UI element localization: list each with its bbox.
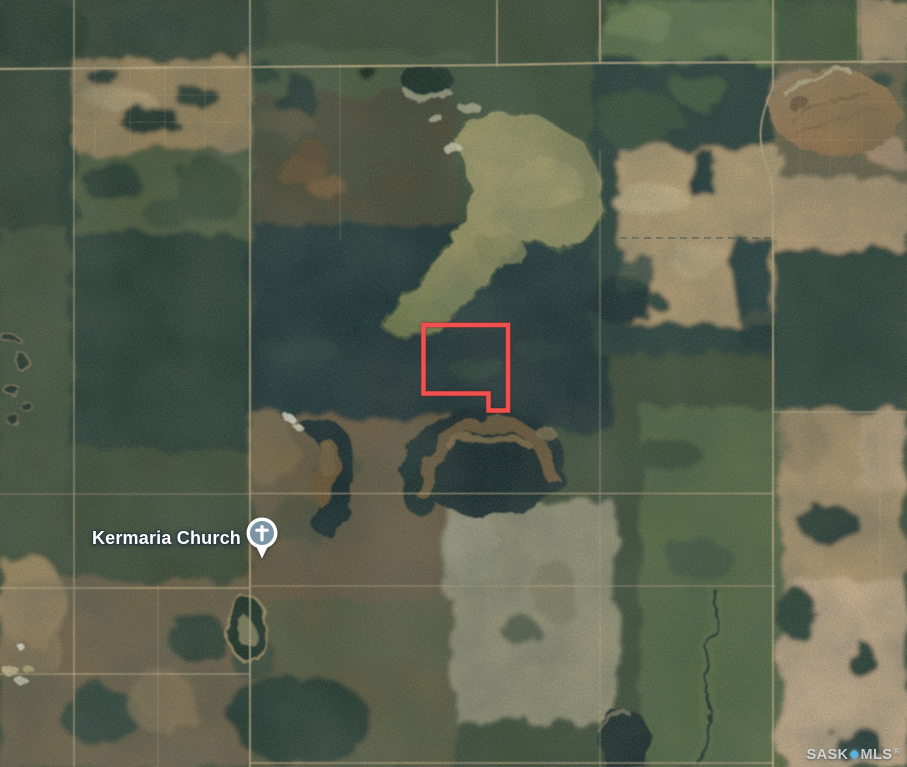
watermark-suffix: MLS — [861, 747, 893, 763]
registered-symbol: ® — [893, 746, 900, 756]
church-poi-label[interactable]: Kermaria Church — [92, 528, 241, 549]
sask-mls-watermark: SASK ◆ MLS ® — [807, 747, 900, 763]
texture-overlay — [0, 0, 907, 767]
diamond-icon: ◆ — [850, 750, 858, 760]
satellite-map-view[interactable]: Kermaria Church SASK ◆ MLS ® — [0, 0, 907, 767]
watermark-prefix: SASK — [807, 747, 849, 763]
church-poi[interactable]: Kermaria Church — [0, 514, 280, 562]
church-pin-icon[interactable] — [244, 515, 280, 561]
satellite-imagery — [0, 0, 907, 767]
